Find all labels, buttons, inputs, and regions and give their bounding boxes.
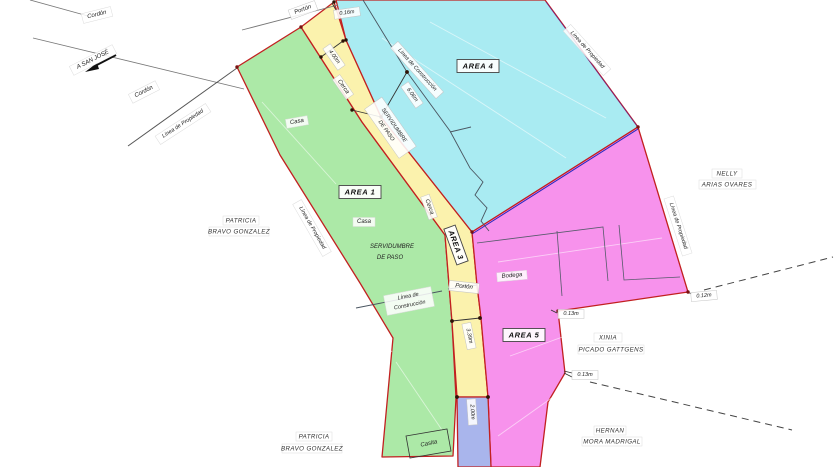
measure-013m-b: 0.13m	[572, 371, 598, 380]
cadastral-survey-map: Cordón A SAN JOSÉ Cordón Línea de Propie…	[0, 0, 835, 467]
svg-text:MORA MADRIGAL: MORA MADRIGAL	[583, 439, 641, 446]
svg-text:SERVIDUMBRE: SERVIDUMBRE	[370, 244, 415, 250]
area5-label: AREA 5	[503, 329, 545, 342]
leader-013m-b2	[564, 373, 572, 377]
property-line-label-a: Línea de Propiedad	[155, 103, 211, 144]
svg-text:BRAVO GONZALEZ: BRAVO GONZALEZ	[281, 446, 343, 453]
owner-nelly-label: NELLY ARIAS OVARES	[699, 169, 756, 189]
svg-text:HERNAN: HERNAN	[596, 428, 625, 435]
svg-text:AREA 4: AREA 4	[462, 62, 494, 71]
svg-text:NELLY: NELLY	[716, 171, 738, 178]
owner-hernan-label: HERNAN MORA MADRIGAL	[582, 426, 642, 446]
cordon-label-b: Cordón	[128, 81, 159, 104]
svg-text:0.13m: 0.13m	[577, 372, 593, 378]
svg-text:PICADO GATTGENS: PICADO GATTGENS	[578, 347, 643, 354]
casa-label-b: Casa	[353, 218, 375, 227]
svg-text:PATRICIA: PATRICIA	[299, 434, 330, 441]
dashed-line-east	[704, 257, 833, 290]
measure-013m-a: 0.13m	[558, 310, 584, 319]
property-line-west	[128, 68, 237, 146]
svg-text:XINIA: XINIA	[598, 335, 617, 342]
svg-text:ARIAS OVARES: ARIAS OVARES	[701, 182, 753, 189]
svg-text:0.13m: 0.13m	[563, 311, 579, 317]
measure-012m: 0.12m	[691, 290, 718, 301]
road-edge-corner	[30, 0, 88, 16]
owner-patricia-upper-label: PATRICIA BRAVO GONZALEZ	[208, 216, 270, 236]
area1-label: AREA 1	[339, 186, 381, 199]
road-edge-cordon	[33, 38, 244, 89]
svg-text:DE PASO: DE PASO	[377, 255, 404, 261]
svg-text:AREA 1: AREA 1	[344, 188, 376, 197]
measure-200m: 2.00m	[467, 399, 478, 426]
owner-xinia-label: XINIA PICADO GATTGENS	[578, 333, 644, 354]
svg-text:PATRICIA: PATRICIA	[226, 218, 257, 225]
san-jose-label: A SAN JOSÉ	[69, 45, 116, 76]
porton-label-top: Portón	[288, 1, 318, 20]
owner-patricia-lower-label: PATRICIA BRAVO GONZALEZ	[281, 432, 343, 453]
svg-text:2.00m: 2.00m	[468, 403, 475, 420]
dashed-line-south	[590, 382, 792, 430]
svg-text:BRAVO GONZALEZ: BRAVO GONZALEZ	[208, 229, 270, 236]
svg-text:AREA 5: AREA 5	[508, 331, 540, 340]
cordon-label-a: Cordón	[81, 7, 113, 24]
svg-text:Casa: Casa	[357, 219, 372, 225]
area4-label: AREA 4	[457, 60, 499, 73]
svg-text:Línea de Propiedad: Línea de Propiedad	[161, 108, 205, 140]
